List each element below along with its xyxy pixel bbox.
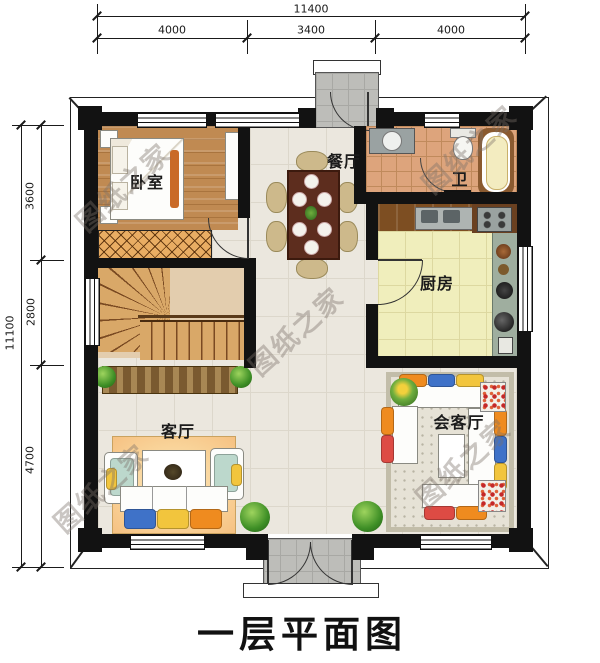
column — [246, 534, 268, 560]
column — [298, 108, 316, 128]
sofa-seam — [152, 486, 153, 510]
stairs-run — [140, 320, 244, 360]
kitchen-jar — [498, 264, 509, 275]
dim-top-seg-2: 3400 — [297, 24, 325, 37]
bedroom-door-leaf — [247, 218, 249, 258]
flower-box — [478, 480, 506, 512]
bedroom-dresser — [225, 132, 239, 200]
wall-bedroom-right — [238, 126, 250, 218]
window — [420, 534, 492, 550]
sofa-cushion-orange — [381, 407, 394, 435]
wall-stair-top — [84, 258, 256, 268]
sofa-cushion-red — [381, 435, 394, 463]
extension-line — [525, 4, 526, 54]
window — [517, 246, 533, 332]
dining-chair — [296, 258, 328, 279]
kitchen-pot — [496, 282, 513, 299]
kitchen-appliance — [498, 337, 513, 354]
dim-top-seg-1: 4000 — [158, 24, 186, 37]
plant — [352, 501, 383, 532]
extension-line — [30, 260, 64, 261]
plant — [230, 366, 252, 388]
plate — [304, 174, 319, 189]
plate — [317, 192, 332, 207]
window — [130, 534, 205, 550]
dim-left-seg-3: 4700 — [24, 446, 37, 474]
wardrobe — [98, 230, 212, 260]
pillow — [231, 464, 242, 486]
stairs-rail — [138, 315, 244, 318]
extension-line — [30, 365, 64, 366]
sofa-cushion-orange — [190, 509, 222, 529]
reception-sofa-left — [392, 406, 418, 464]
plate — [292, 222, 307, 237]
room-label-living: 客厅 — [161, 418, 195, 442]
column — [78, 528, 102, 552]
dim-left-seg-2: 2800 — [25, 298, 38, 326]
column — [78, 106, 102, 130]
dim-line-total — [97, 16, 525, 17]
plant — [240, 502, 270, 532]
dim-line-total — [21, 125, 22, 567]
plan-title: 一层平面图 — [197, 604, 407, 658]
sink-bowl — [443, 210, 460, 223]
dim-left-total: 11100 — [4, 316, 17, 351]
dining-chair — [296, 151, 328, 172]
plate — [317, 222, 332, 237]
sink-bowl — [421, 210, 438, 223]
table-decor — [164, 464, 182, 480]
wall-kitchen-left-upper — [366, 204, 378, 260]
dim-left-seg-1: 3600 — [24, 182, 37, 210]
sofa-seam — [186, 486, 187, 510]
window — [424, 112, 460, 128]
room-label-kitchen: 厨房 — [420, 270, 454, 294]
table-centerpiece — [305, 206, 317, 220]
kitchen-jar — [496, 244, 511, 259]
dining-chair — [266, 182, 287, 213]
dim-top-total: 11400 — [294, 3, 329, 16]
sofa-cushion-blue — [428, 374, 455, 387]
dim-line-segments — [41, 125, 42, 567]
extension-line — [97, 4, 98, 54]
kitchen-wok — [494, 312, 514, 332]
kitchen-door-leaf — [378, 259, 422, 261]
flower-box — [480, 382, 506, 412]
dining-chair — [337, 221, 358, 252]
wall-kitchen-bottom — [366, 356, 517, 368]
column — [509, 528, 533, 552]
dim-top-seg-3: 4000 — [437, 24, 465, 37]
sofa-cushion-yellow — [157, 509, 189, 529]
front-porch-step — [243, 583, 379, 598]
window — [215, 112, 300, 128]
plate — [304, 240, 319, 255]
flower-plant — [390, 378, 418, 406]
dining-chair — [266, 221, 287, 252]
sofa-cushion-blue — [124, 509, 156, 529]
window — [137, 112, 207, 128]
plate — [292, 192, 307, 207]
column — [376, 108, 394, 128]
washbasin — [382, 131, 402, 151]
stove — [477, 207, 512, 232]
room-label-dining: 餐厅 — [327, 148, 361, 172]
tv-console — [102, 366, 238, 394]
column — [352, 534, 374, 560]
dim-line-segments — [97, 38, 525, 39]
floor-plan-sheet: 11400 4000 3400 4000 11100 3600 2800 470… — [0, 0, 600, 663]
window — [84, 278, 100, 346]
